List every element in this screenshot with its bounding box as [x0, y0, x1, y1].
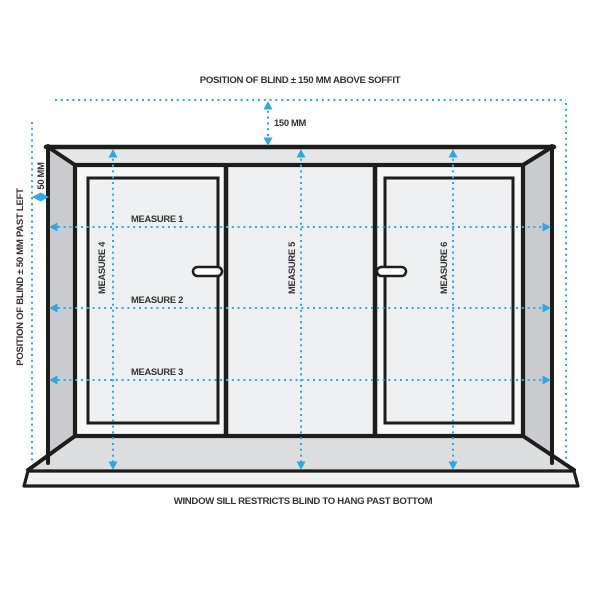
measure-2-label: MEASURE 2: [131, 294, 183, 305]
measure-3-label: MEASURE 3: [131, 366, 183, 377]
measure-4-label: MEASURE 4: [96, 241, 107, 294]
left-offset-label: 50 MM: [35, 162, 46, 190]
measuring-guide-diagram: POSITION OF BLIND ± 150 MM ABOVE SOFFIT …: [0, 0, 600, 600]
top-title: POSITION OF BLIND ± 150 MM ABOVE SOFFIT: [200, 75, 401, 86]
window-sill-board: [24, 471, 578, 486]
measure-1-label: MEASURE 1: [131, 213, 183, 224]
diagram-canvas: POSITION OF BLIND ± 150 MM ABOVE SOFFIT …: [0, 0, 600, 600]
measure-6-label: MEASURE 6: [438, 242, 449, 294]
arrow-down-icon: [264, 138, 273, 147]
right-door-panel: [385, 178, 513, 423]
arrow-up-icon: [264, 101, 273, 110]
top-offset-label: 150 MM: [274, 117, 307, 128]
left-door-handle: [193, 267, 222, 276]
right-door-handle: [377, 267, 406, 276]
bottom-title: WINDOW SILL RESTRICTS BLIND TO HANG PAST…: [174, 496, 433, 507]
left-title: POSITION OF BLIND ± 50 MM PAST LEFT: [15, 188, 26, 366]
measure-5-label: MEASURE 5: [286, 242, 297, 294]
arrow-left-icon: [32, 193, 41, 202]
